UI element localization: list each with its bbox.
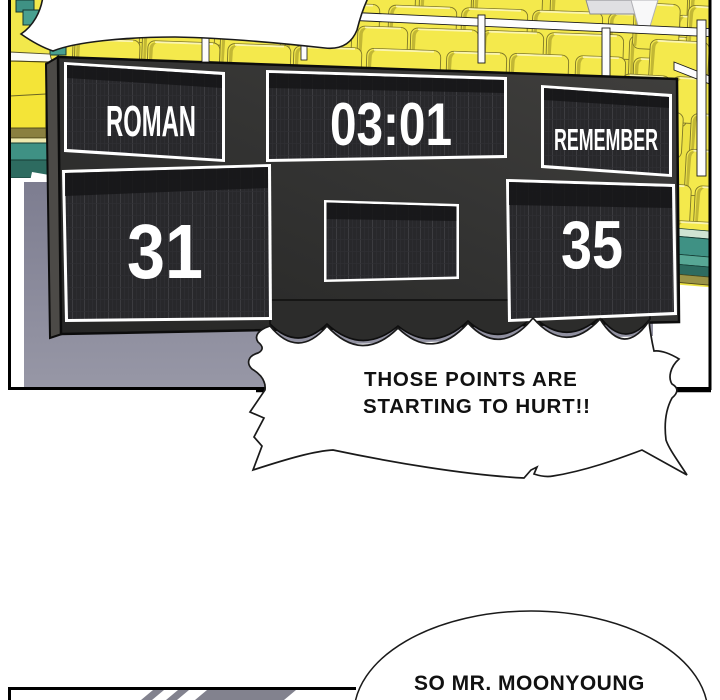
svg-text:03:01: 03:01: [330, 91, 452, 158]
svg-text:35: 35: [561, 207, 623, 283]
svg-text:SO MR. MOONYOUNG: SO MR. MOONYOUNG: [414, 672, 645, 695]
svg-text:ROMAN: ROMAN: [106, 97, 196, 146]
svg-text:REMEMBER: REMEMBER: [554, 122, 658, 157]
svg-text:31: 31: [127, 209, 203, 295]
svg-text:STARTING TO HURT!!: STARTING TO HURT!!: [363, 395, 591, 418]
svg-text:THOSE POINTS ARE: THOSE POINTS ARE: [364, 368, 578, 391]
